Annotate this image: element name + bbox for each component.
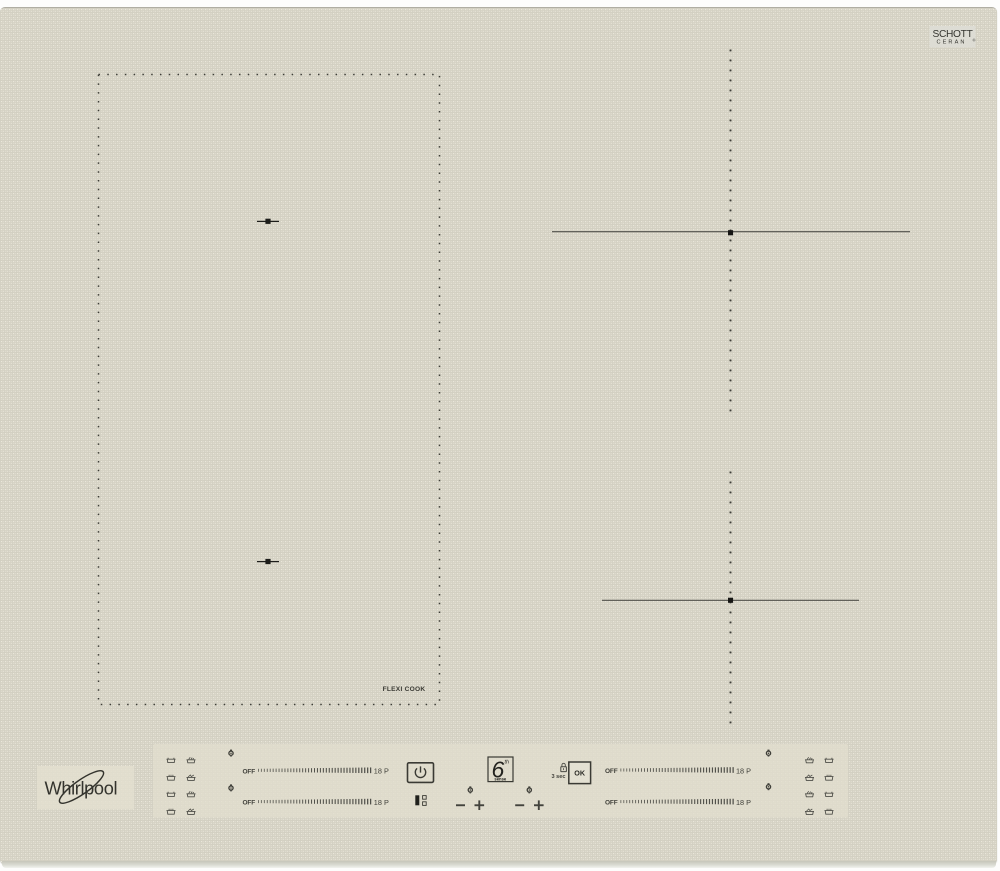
svg-text:th: th	[505, 760, 510, 766]
svg-text:18 P: 18 P	[736, 766, 751, 775]
svg-text:CERAN: CERAN	[936, 40, 966, 46]
svg-text:FLEXI COOK: FLEXI COOK	[383, 686, 426, 693]
svg-text:OK: OK	[574, 769, 586, 778]
svg-text:OFF: OFF	[243, 768, 256, 775]
svg-text:18 P: 18 P	[374, 798, 389, 807]
svg-text:OFF: OFF	[605, 768, 618, 775]
svg-text:3 sec: 3 sec	[552, 774, 566, 780]
svg-text:18 P: 18 P	[736, 798, 751, 807]
svg-text:18 P: 18 P	[374, 767, 389, 776]
svg-text:OFF: OFF	[605, 800, 618, 807]
svg-text:SCHOTT: SCHOTT	[932, 29, 972, 40]
svg-text:®: ®	[973, 38, 976, 43]
svg-text:OFF: OFF	[243, 800, 256, 807]
svg-text:sense: sense	[494, 776, 507, 781]
